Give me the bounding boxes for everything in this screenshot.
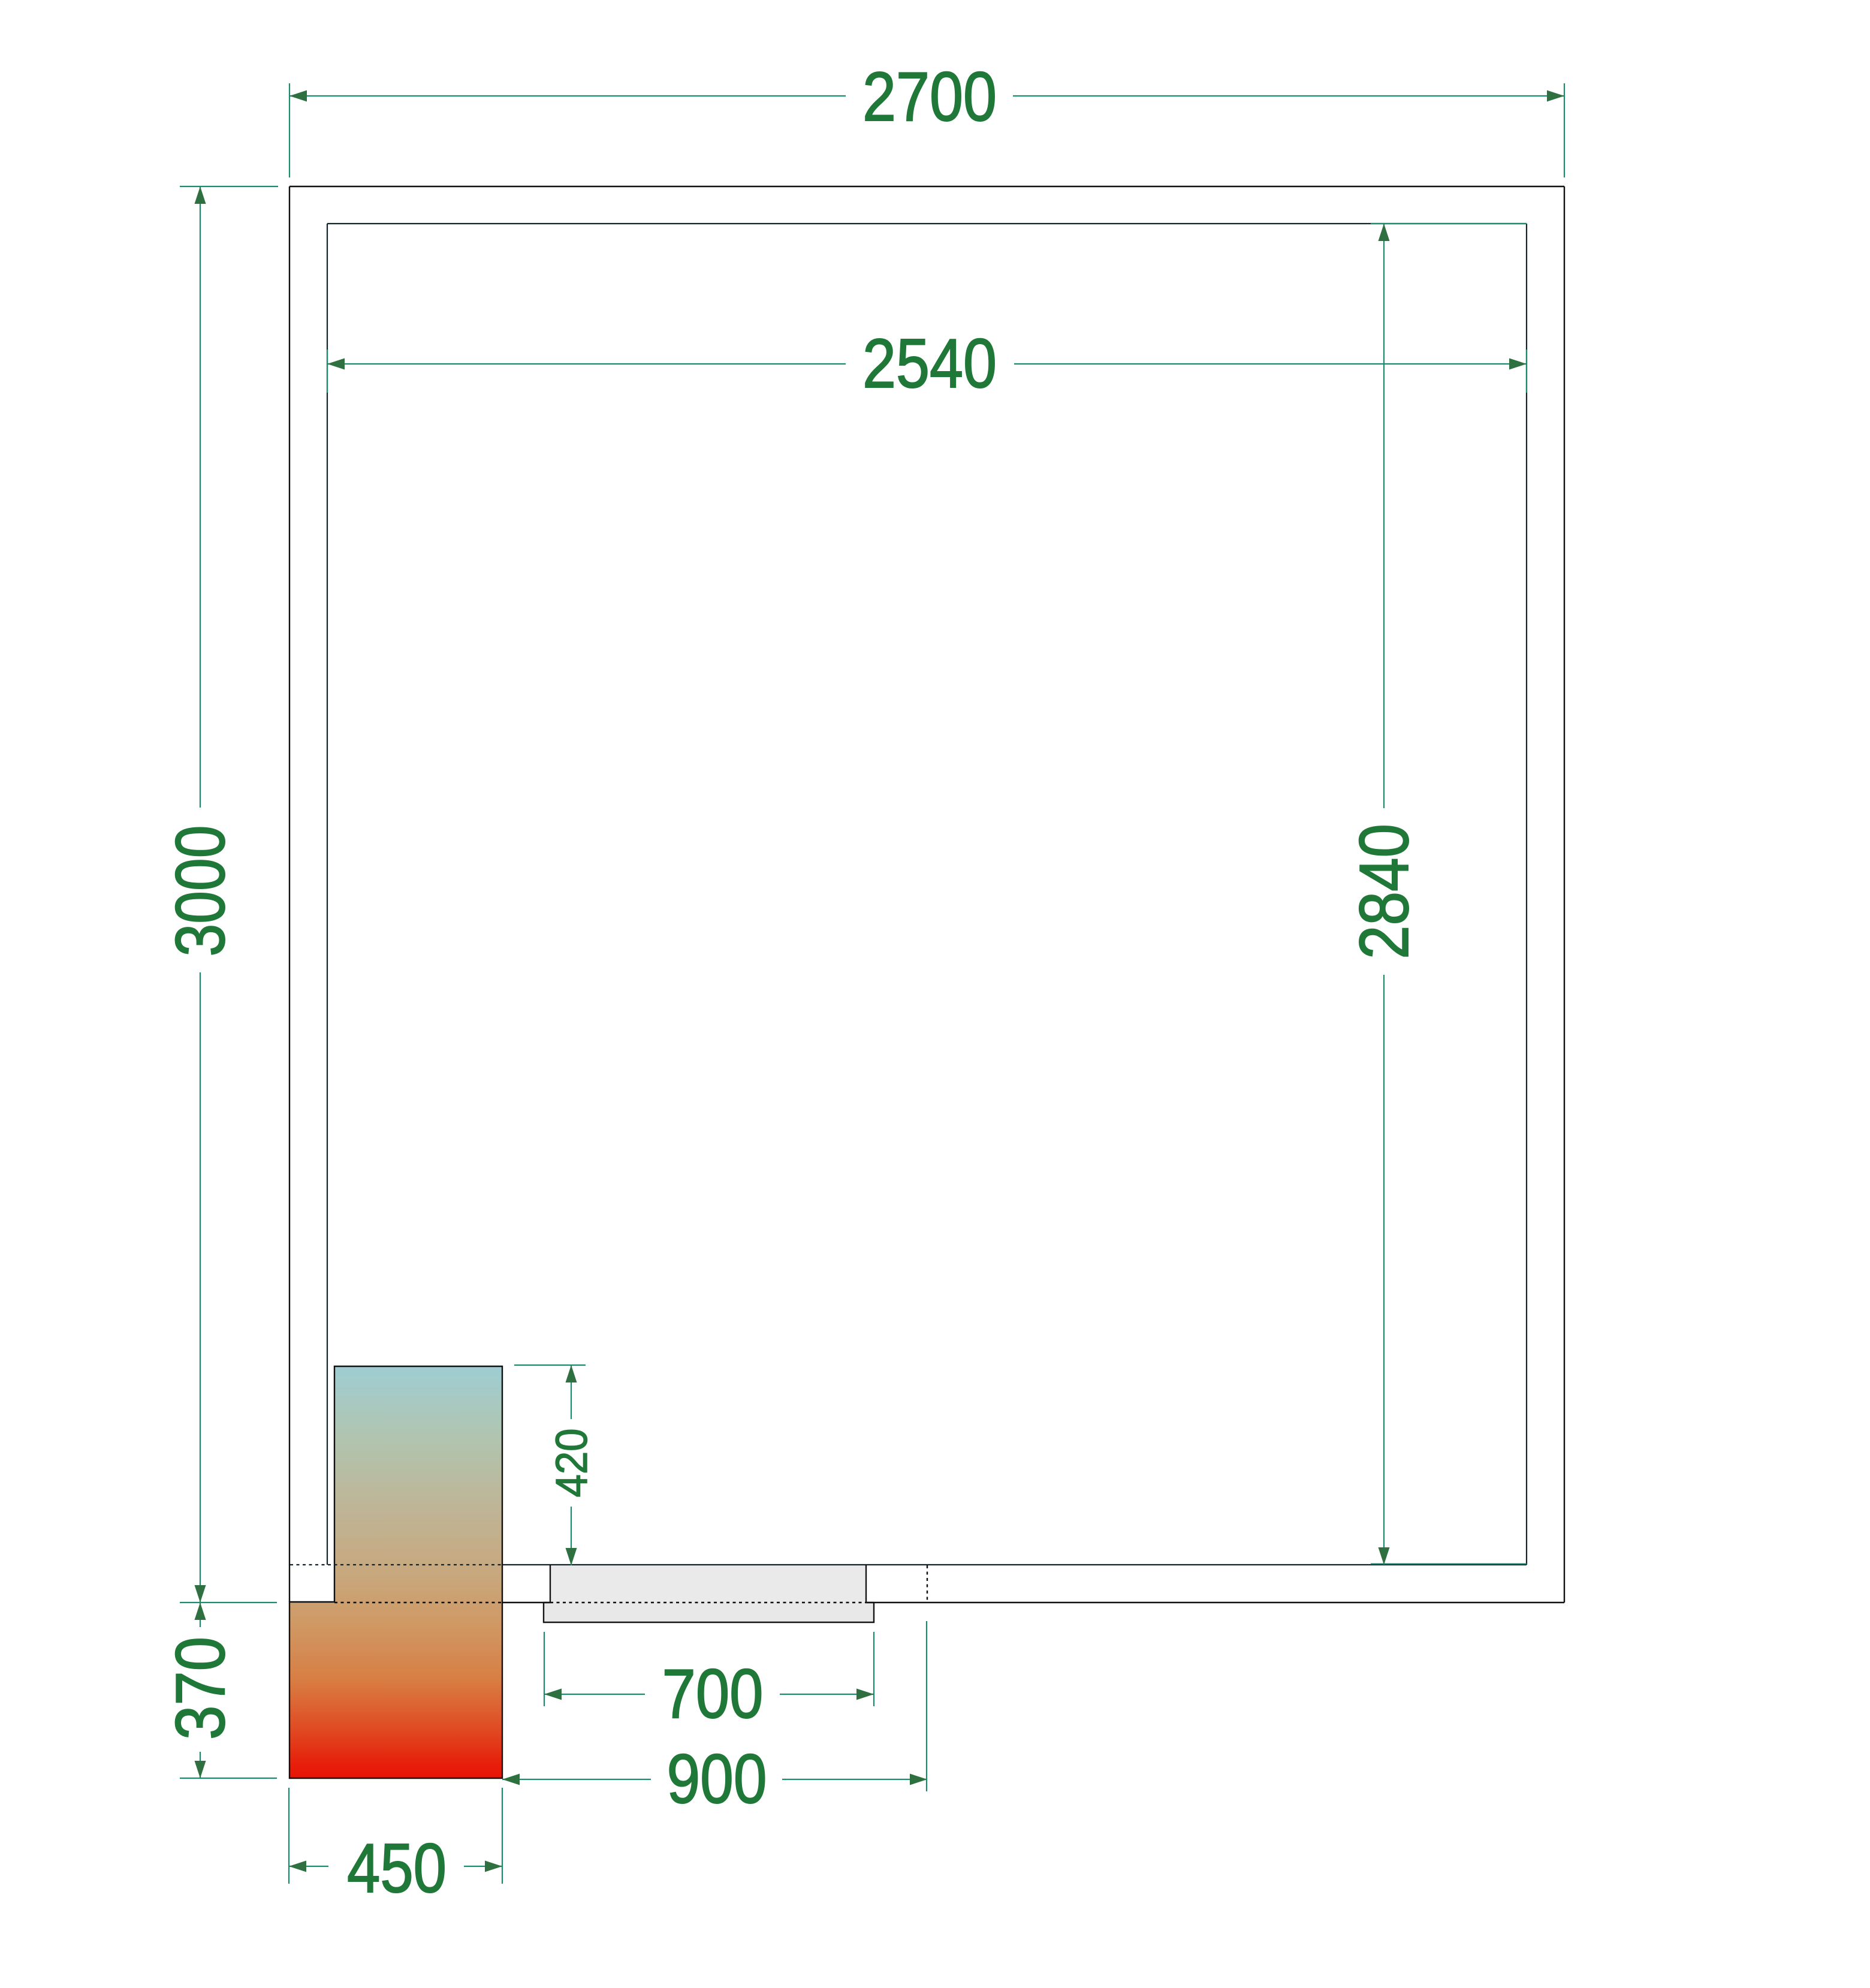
svg-text:700: 700 xyxy=(662,1655,764,1733)
svg-text:2540: 2540 xyxy=(862,324,997,402)
svg-text:3000: 3000 xyxy=(161,826,239,957)
svg-text:450: 450 xyxy=(347,1829,447,1907)
svg-text:900: 900 xyxy=(667,1740,767,1818)
svg-text:370: 370 xyxy=(161,1637,239,1740)
svg-text:420: 420 xyxy=(547,1429,596,1498)
svg-text:2840: 2840 xyxy=(1345,824,1423,959)
svg-text:2700: 2700 xyxy=(862,58,997,135)
